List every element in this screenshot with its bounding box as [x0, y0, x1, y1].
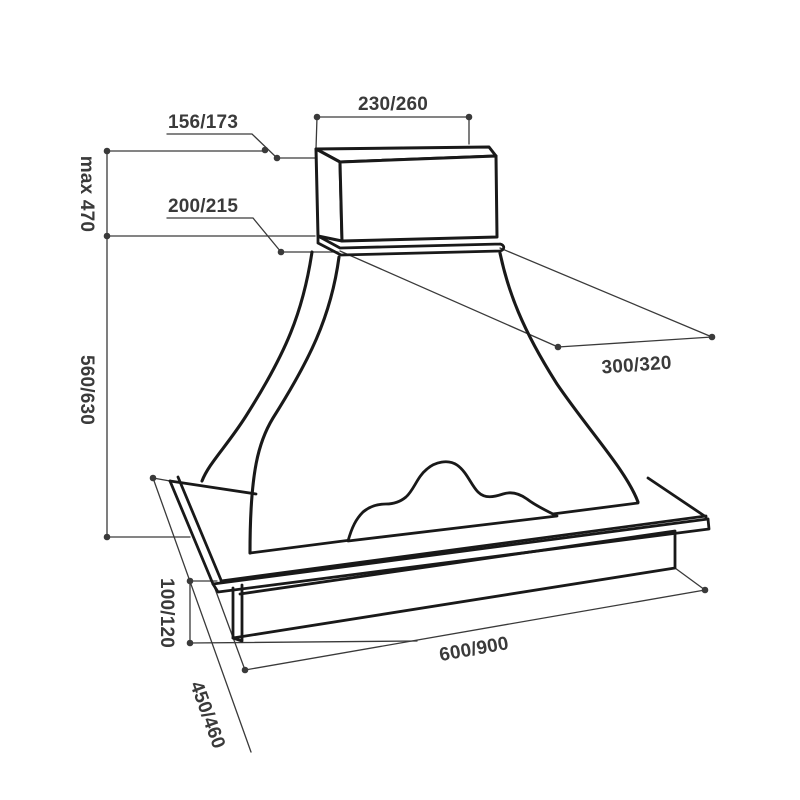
dim-label-duct-offset: 156/173	[168, 112, 238, 133]
dim-label-base-width: 600/900	[438, 633, 511, 666]
dim-label-max-height: max 470	[76, 156, 97, 232]
dim-label-duct-top-width: 230/260	[358, 94, 428, 115]
dot	[242, 667, 249, 674]
dot	[314, 114, 321, 121]
duct-box-left-face	[316, 149, 342, 241]
dot	[187, 578, 194, 585]
dim-label-collar: 200/215	[168, 196, 238, 217]
scalloped-front-board	[348, 462, 557, 541]
canopy-left-outer-curve	[202, 252, 312, 481]
dot	[555, 344, 562, 351]
dot	[104, 534, 111, 541]
canopy-right-curve	[500, 253, 638, 502]
dot	[278, 249, 285, 256]
dot	[104, 233, 111, 240]
dot	[702, 587, 709, 594]
dimension-duct-top-width	[316, 117, 469, 149]
technical-drawing-page: 230/260 156/173 max 470 200/215 300/320 …	[0, 0, 800, 800]
dim-label-base-height: 100/120	[156, 578, 177, 648]
dot	[187, 640, 194, 647]
leader-duct-offset	[167, 134, 317, 158]
leader-collar	[167, 218, 338, 252]
dim-label-body-height: 560/630	[76, 355, 97, 425]
dot	[274, 155, 281, 162]
hood-outline-group	[170, 147, 709, 641]
dim-label-top-depth: 300/320	[601, 353, 672, 379]
dot	[104, 148, 111, 155]
duct-box-front-face	[340, 156, 497, 241]
dot	[150, 475, 157, 482]
dot	[466, 114, 473, 121]
range-hood-dimension-drawing: 230/260 156/173 max 470 200/215 300/320 …	[0, 0, 800, 800]
canopy-left-inner-curve	[250, 257, 339, 553]
dot	[262, 147, 269, 154]
base-inner-back-right-edge	[648, 478, 706, 517]
dim-label-base-depth: 450/460	[185, 679, 229, 752]
base-left-outer-edge	[170, 481, 213, 584]
dot	[709, 334, 716, 341]
